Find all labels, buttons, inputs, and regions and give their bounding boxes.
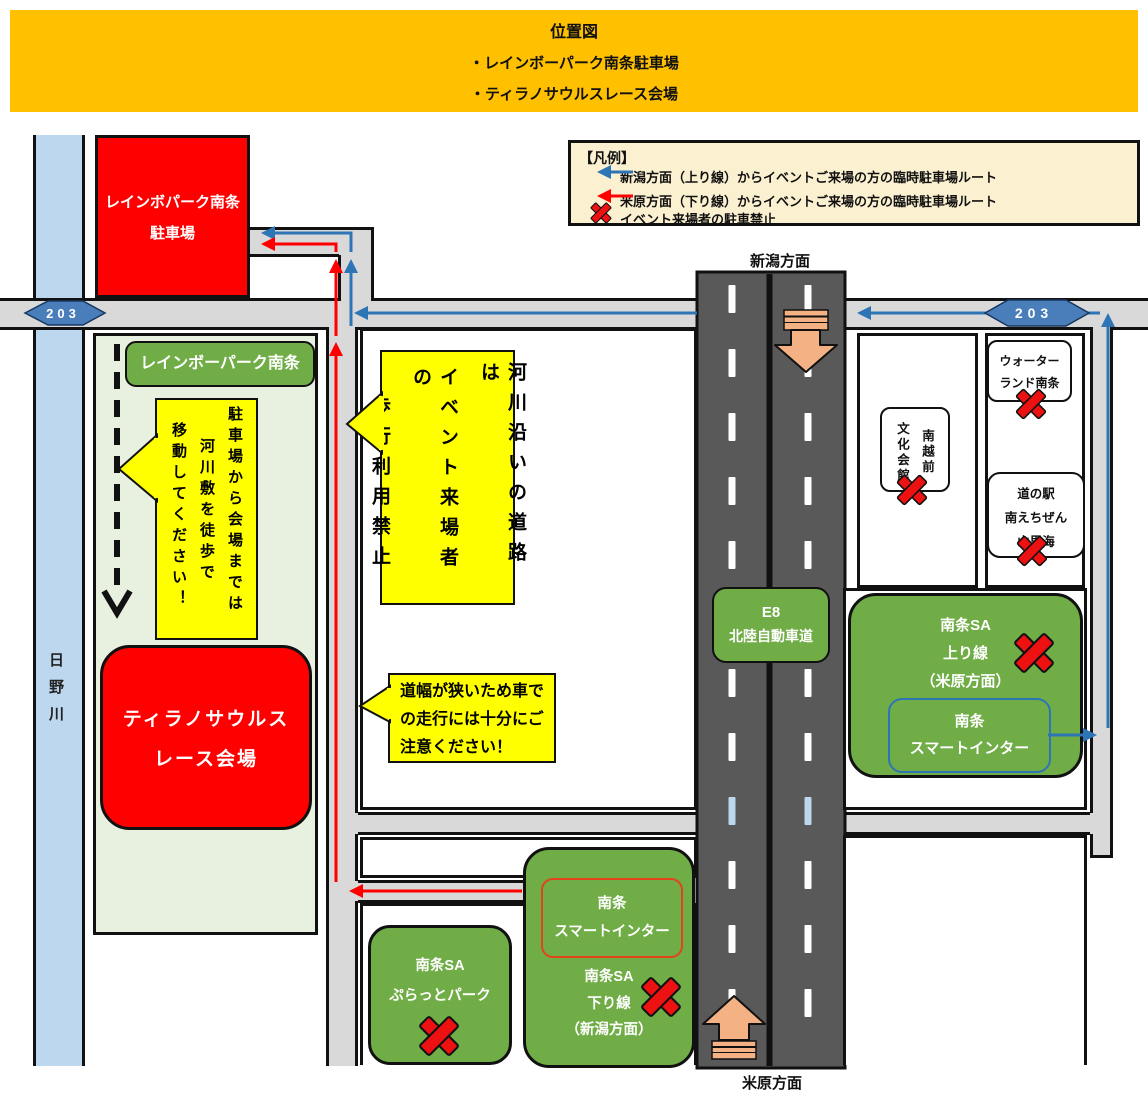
lane-dash — [729, 413, 736, 441]
smart-ic-up-line2: スマートインター — [890, 737, 1049, 758]
narrow-road-callout: 道幅が狭いため車で の走行には十分にご 注意ください！ — [388, 673, 556, 763]
walk-callout-col1: 駐車場から会場までは — [224, 404, 245, 634]
michinoeki-box: 道の駅 南えちぜん 山里海 — [987, 472, 1085, 558]
smart-ic-up-line1: 南条 — [890, 710, 1049, 731]
lane-dash — [729, 861, 736, 889]
lane-dash — [729, 349, 736, 377]
narrow-callout-line1: 道幅が狭いため車で — [400, 678, 544, 706]
smart-ic-down-line1: 南条 — [543, 892, 681, 913]
sa-down-line2: 下り線 — [526, 992, 692, 1013]
riverside-col1: 河川沿いの道路は — [475, 356, 529, 599]
expressway-name: 北陸自動車道 — [729, 626, 813, 646]
parking-lot-box: レインボパーク南条 駐車場 — [95, 135, 250, 298]
lane-dash — [729, 733, 736, 761]
platto-park-box: 南条SA ぷらっとパーク — [368, 925, 512, 1065]
sa-up-line2: 上り線 — [851, 642, 1080, 663]
expressway-name-box: E8 北陸自動車道 — [712, 587, 830, 663]
lane-dash — [729, 669, 736, 697]
river-label: 日野川 — [45, 652, 66, 733]
waterland-line2: ランド南条 — [989, 374, 1070, 391]
legend: 【凡例】 新潟方面（上り線）からイベントご来場の方の臨時駐車場ルート 米原方面（… — [568, 140, 1140, 226]
rainbow-park-label: レインボーパーク南条 — [140, 355, 300, 372]
lane-dash — [729, 925, 736, 953]
riverside-col3: 歩行利用禁止 — [366, 356, 393, 599]
platto-line2: ぷらっとパーク — [371, 984, 509, 1005]
traffic-up-arrow-icon — [703, 996, 765, 1059]
lane-dash — [805, 989, 812, 1017]
lane-dash — [729, 477, 736, 505]
expressway-road — [697, 272, 845, 1068]
title-bar: 位置図 ・レインボーパーク南条駐車場 ・ティラノサウルスレース会場 — [10, 10, 1138, 112]
walk-callout-col3: 移動してください！ — [168, 404, 189, 634]
road-lower-left — [326, 880, 527, 903]
lane-dash — [729, 797, 736, 825]
road-narrow-vertical — [326, 327, 358, 1066]
road-203 — [0, 298, 1148, 330]
lane-dash — [805, 285, 812, 313]
traffic-down-arrow-icon — [775, 310, 837, 372]
lane-dash — [729, 541, 736, 569]
michinoeki-line3: 山里海 — [989, 531, 1083, 550]
venue-line1: ティラノサウルス — [123, 704, 289, 731]
nanjo-sa-down-box: 南条 スマートインター 南条SA 下り線 （新潟方面） — [523, 847, 695, 1068]
parking-lot-line1: レインボパーク南条 — [105, 191, 240, 212]
venue-line2: レース会場 — [154, 744, 258, 771]
bunka-col2: 文化会館 — [893, 415, 912, 490]
direction-label-bottom: 米原方面 — [712, 1072, 832, 1093]
narrow-callout-line2: の走行には十分にご — [400, 706, 544, 734]
svg-text:203: 203 — [1015, 305, 1053, 321]
lane-dash — [805, 733, 812, 761]
legend-no-parking-label: イベント来場者の駐車禁止 — [620, 209, 776, 228]
lane-dash — [805, 541, 812, 569]
road-right-vertical — [1090, 298, 1113, 858]
platto-line1: 南条SA — [371, 954, 509, 975]
title-item-parking: ・レインボーパーク南条駐車場 — [469, 52, 679, 73]
michinoeki-line1: 道の駅 — [989, 483, 1083, 502]
route-badge-right: 203 — [985, 300, 1089, 326]
lane-dash — [805, 797, 812, 825]
expressway-code: E8 — [762, 604, 780, 621]
walk-callout: 駐車場から会場までは 河川敷を徒歩で 移動してください！ — [155, 398, 258, 640]
narrow-callout-line3: 注意ください！ — [400, 734, 544, 762]
nanjo-sa-up-box: 南条SA 上り線 （米原方面） 南条 スマートインター — [848, 593, 1083, 778]
waterland-box: ウォーター ランド南条 — [987, 340, 1072, 402]
sa-up-line3: （米原方面） — [851, 670, 1080, 691]
lane-dash — [805, 349, 812, 377]
title-item-venue: ・ティラノサウルスレース会場 — [470, 83, 678, 104]
lane-dash — [805, 925, 812, 953]
sa-up-line1: 南条SA — [851, 614, 1080, 635]
lane-dash — [729, 285, 736, 313]
sa-down-line1: 南条SA — [526, 965, 692, 986]
smart-ic-down-box: 南条 スマートインター — [541, 878, 683, 958]
river — [33, 135, 85, 1066]
riverside-col2: イベント来場者の — [407, 356, 461, 599]
bunka-col1: 南越前 — [918, 415, 937, 490]
lane-dash — [805, 413, 812, 441]
lane-dash — [805, 861, 812, 889]
direction-label-top: 新潟方面 — [720, 250, 840, 271]
legend-route-blue-label: 新潟方面（上り線）からイベントご来場の方の臨時駐車場ルート — [620, 167, 997, 186]
road-parking-stub — [248, 227, 374, 257]
location-map: 位置図 ・レインボーパーク南条駐車場 ・ティラノサウルスレース会場 日野川 — [0, 0, 1148, 1096]
bunka-kaikan-box: 南越前 文化会館 — [880, 407, 950, 492]
sa-down-line3: （新潟方面） — [526, 1018, 692, 1039]
lane-dash — [805, 477, 812, 505]
parking-lot-line2: 駐車場 — [150, 222, 195, 243]
walk-callout-col2: 河川敷を徒歩で — [196, 404, 217, 634]
michinoeki-line2: 南えちぜん — [989, 507, 1083, 526]
smart-ic-down-line2: スマートインター — [543, 920, 681, 941]
lane-dash — [729, 989, 736, 1017]
lane-dash — [805, 669, 812, 697]
legend-route-red-label: 米原方面（下り線）からイベントご来場の方の臨時駐車場ルート — [620, 191, 997, 210]
road-middle — [326, 812, 1113, 835]
road-parking-connector — [338, 227, 374, 302]
riverside-callout: 河川沿いの道路は イベント来場者の 歩行利用禁止 — [380, 350, 515, 605]
venue-box: ティラノサウルス レース会場 — [100, 645, 312, 830]
block-right-bottom — [843, 835, 1087, 1065]
expressway-median — [767, 274, 773, 1066]
rainbow-park-label-box: レインボーパーク南条 — [125, 341, 315, 387]
legend-heading: 【凡例】 — [579, 148, 635, 168]
page-title: 位置図 — [550, 18, 598, 42]
smart-ic-up-box: 南条 スマートインター — [888, 698, 1051, 773]
waterland-line1: ウォーター — [989, 352, 1070, 369]
